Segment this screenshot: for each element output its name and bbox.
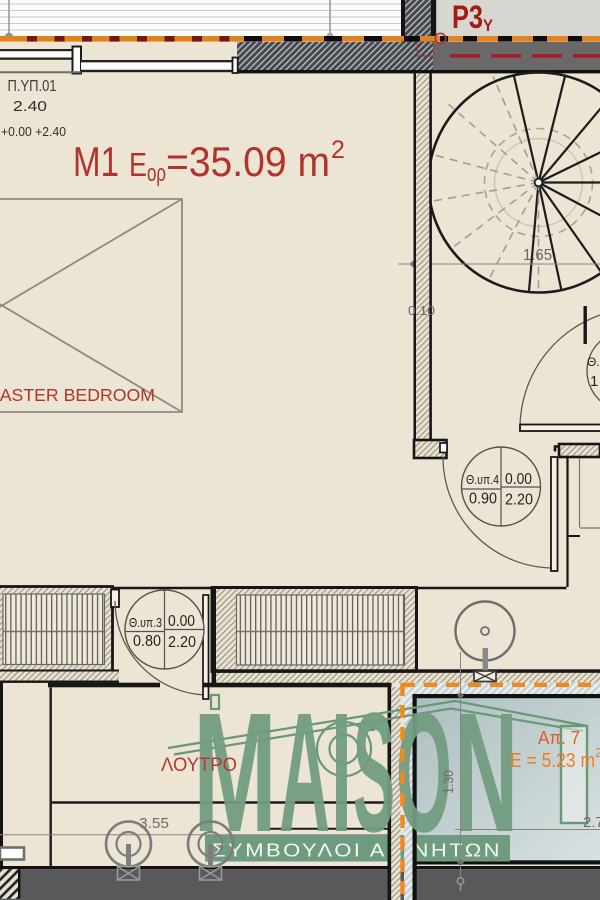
svg-text:2.75: 2.75 xyxy=(583,814,600,831)
svg-text:Απ. 7: Απ. 7 xyxy=(538,728,580,748)
svg-text:MASTER BEDROOM: MASTER BEDROOM xyxy=(0,385,155,405)
svg-text:2.40: 2.40 xyxy=(13,98,47,115)
svg-text:Ε: Ε xyxy=(129,146,147,183)
svg-text:ορ: ορ xyxy=(147,160,166,187)
svg-text:ΛΟΥΤΡΟ: ΛΟΥΤΡΟ xyxy=(161,755,237,776)
svg-text:ΣΥΜΒΟΥΛΟΙ ΑΚΙΝΗΤΩΝ: ΣΥΜΒΟΥΛΟΙ ΑΚΙΝΗΤΩΝ xyxy=(212,841,502,861)
svg-text:0.90: 0.90 xyxy=(469,491,497,508)
svg-text:0.00: 0.00 xyxy=(168,613,195,630)
svg-text:M1: M1 xyxy=(73,138,119,185)
svg-text:0.00: 0.00 xyxy=(505,471,532,488)
svg-text:0.80: 0.80 xyxy=(133,633,161,650)
svg-text:+0.00 +2.40: +0.00 +2.40 xyxy=(1,125,66,139)
svg-text:Υ: Υ xyxy=(483,16,494,35)
svg-text:2.20: 2.20 xyxy=(168,634,196,651)
svg-text:Θ.: Θ. xyxy=(587,355,600,369)
svg-text:1: 1 xyxy=(590,373,598,390)
svg-text:Θ.υπ.3: Θ.υπ.3 xyxy=(129,615,162,630)
svg-text:2: 2 xyxy=(595,745,600,760)
svg-text:2.20: 2.20 xyxy=(505,492,533,509)
svg-text:P3: P3 xyxy=(452,0,483,35)
svg-text:1.30: 1.30 xyxy=(440,770,456,794)
svg-text:Θ.υπ.4: Θ.υπ.4 xyxy=(466,472,499,487)
svg-text:2: 2 xyxy=(331,136,345,164)
svg-text:=35.09 m: =35.09 m xyxy=(166,138,330,185)
svg-text:E = 5.23 m: E = 5.23 m xyxy=(510,750,595,772)
svg-text:0.10: 0.10 xyxy=(408,304,435,318)
svg-text:3.55: 3.55 xyxy=(139,815,169,832)
svg-text:1.65: 1.65 xyxy=(523,247,552,264)
svg-text:Π.ΥΠ.01: Π.ΥΠ.01 xyxy=(8,78,57,95)
